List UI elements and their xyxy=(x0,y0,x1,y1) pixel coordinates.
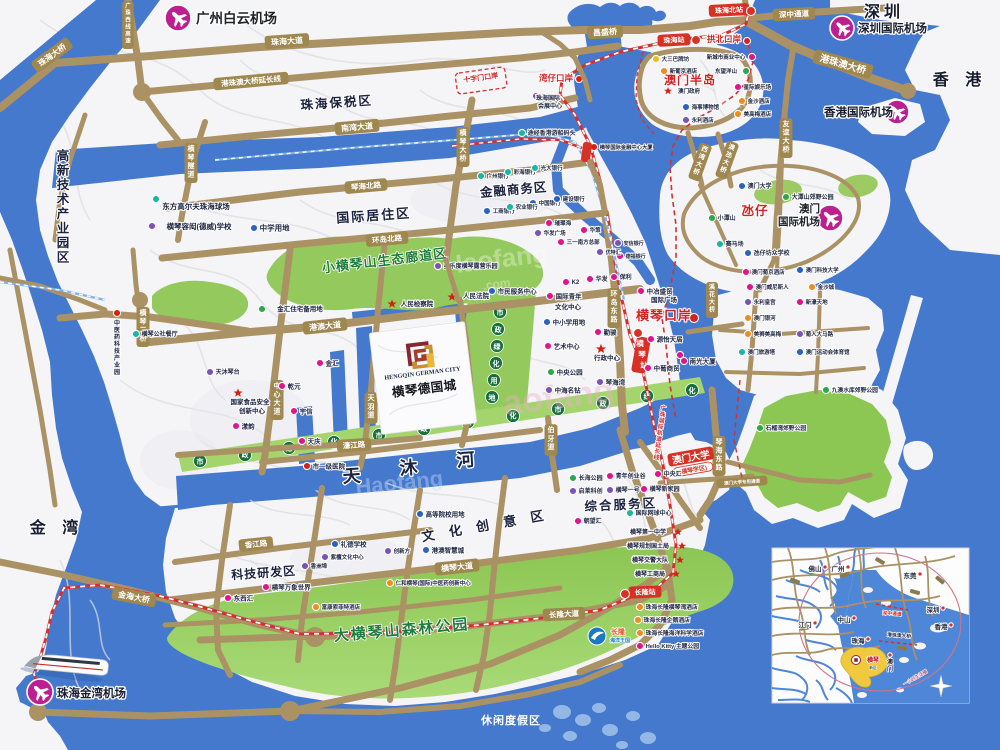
svg-text:永利皇宫: 永利皇宫 xyxy=(753,298,777,306)
svg-text:产: 产 xyxy=(57,206,70,221)
svg-text:珠海长隆企鹅酒店: 珠海长隆企鹅酒店 xyxy=(644,616,691,624)
svg-text:珠海长隆海洋科学酒店: 珠海长隆海洋科学酒店 xyxy=(646,629,704,637)
svg-text:途经香港游船码头: 途经香港游船码头 xyxy=(528,129,576,137)
svg-text:南光大厦: 南光大厦 xyxy=(690,356,717,365)
svg-text:金沙城: 金沙城 xyxy=(817,283,835,291)
svg-text:市: 市 xyxy=(197,457,204,466)
svg-text:大: 大 xyxy=(709,298,715,306)
svg-text:深中通道: 深中通道 xyxy=(779,8,810,20)
svg-text:美狮美高梅: 美狮美高梅 xyxy=(754,330,782,338)
svg-text:休闲度假区: 休闲度假区 xyxy=(480,713,541,727)
svg-text:礼德学校: 礼德学校 xyxy=(341,539,368,548)
svg-text:文化中心: 文化中心 xyxy=(554,302,582,311)
svg-text:横: 横 xyxy=(636,338,644,348)
svg-text:隧: 隧 xyxy=(188,161,196,170)
svg-text:术: 术 xyxy=(56,192,70,207)
svg-text:西: 西 xyxy=(125,16,131,24)
svg-text:沐: 沐 xyxy=(399,456,419,478)
svg-text:永利酒店: 永利酒店 xyxy=(691,116,715,124)
svg-text:东方高尔夫珠海球场: 东方高尔夫珠海球场 xyxy=(162,201,230,211)
svg-text:科: 科 xyxy=(114,340,120,348)
svg-text:大: 大 xyxy=(274,398,281,407)
svg-text:国家食品安全: 国家食品安全 xyxy=(231,397,271,406)
svg-text:长海公园: 长海公园 xyxy=(579,474,603,482)
svg-text:葡人大马路: 葡人大马路 xyxy=(805,330,834,338)
svg-text:紫檀文化中心: 紫檀文化中心 xyxy=(331,553,365,561)
svg-text:横: 横 xyxy=(140,308,147,317)
svg-text:金 湾: 金 湾 xyxy=(29,518,84,537)
svg-text:天沐琴台: 天沐琴台 xyxy=(216,368,240,376)
svg-text:澳门威尼斯人: 澳门威尼斯人 xyxy=(756,283,790,291)
svg-text:珠海国际: 珠海国际 xyxy=(536,94,560,102)
svg-text:地: 地 xyxy=(489,393,496,402)
svg-text:用: 用 xyxy=(491,377,498,385)
svg-text:道: 道 xyxy=(188,170,195,179)
svg-text:珠海金湾机场: 珠海金湾机场 xyxy=(57,686,126,700)
svg-text:新城市商业中心: 新城市商业中心 xyxy=(707,53,746,61)
svg-text:长隆: 长隆 xyxy=(611,627,626,636)
svg-text:长隆大道: 长隆大道 xyxy=(549,608,580,620)
svg-text:东: 东 xyxy=(716,454,723,463)
svg-text:高等院校用地: 高等院校用地 xyxy=(426,509,466,518)
svg-text:澳门: 澳门 xyxy=(799,202,820,215)
svg-text:金沙酒店: 金沙酒店 xyxy=(747,97,771,105)
svg-text:琴海湾: 琴海湾 xyxy=(605,377,626,386)
svg-text:谊: 谊 xyxy=(783,128,790,137)
svg-text:美高梅酒店: 美高梅酒店 xyxy=(744,110,772,118)
svg-text:大: 大 xyxy=(783,136,790,145)
svg-text:澳门旅游塔: 澳门旅游塔 xyxy=(748,348,776,356)
svg-text:朝望汇: 朝望汇 xyxy=(584,517,602,525)
svg-text:岛: 岛 xyxy=(611,298,618,307)
svg-text:路: 路 xyxy=(611,315,619,324)
svg-text:保利: 保利 xyxy=(619,273,632,281)
svg-text:会展中心: 会展中心 xyxy=(538,102,562,110)
svg-text:横琴规划国土局: 横琴规划国土局 xyxy=(627,542,669,550)
svg-text:国际广场: 国际广场 xyxy=(651,295,678,304)
svg-text:园: 园 xyxy=(114,368,120,376)
svg-text:天: 天 xyxy=(368,394,376,402)
svg-text:佛山: 佛山 xyxy=(808,564,822,573)
svg-text:乾元: 乾元 xyxy=(288,381,302,390)
svg-text:东: 东 xyxy=(611,306,618,315)
svg-text:天庆: 天庆 xyxy=(308,436,322,445)
svg-text:市民服务中心: 市民服务中心 xyxy=(498,286,537,295)
svg-text:创新中心: 创新中心 xyxy=(238,406,266,415)
svg-text:高: 高 xyxy=(57,148,70,163)
svg-text:星际娱乐场: 星际娱乐场 xyxy=(744,83,772,91)
svg-text:广州: 广州 xyxy=(832,564,845,573)
svg-text:产: 产 xyxy=(114,354,120,362)
svg-text:安信银行: 安信银行 xyxy=(624,240,644,247)
svg-text:中央汇: 中央汇 xyxy=(664,470,682,478)
svg-text:化: 化 xyxy=(493,359,500,368)
svg-text:桥: 桥 xyxy=(783,145,791,154)
svg-text:深圳: 深圳 xyxy=(864,2,904,21)
svg-text:东望洋山: 东望洋山 xyxy=(715,67,738,75)
svg-text:广: 广 xyxy=(125,2,131,10)
svg-text:琴: 琴 xyxy=(459,137,468,146)
svg-text:横: 横 xyxy=(460,128,467,137)
svg-text:环: 环 xyxy=(611,290,618,298)
svg-text:璀璨海: 璀璨海 xyxy=(555,219,572,227)
svg-text:德福银行: 德福银行 xyxy=(625,253,646,260)
svg-text:速: 速 xyxy=(125,37,131,45)
svg-text:江门: 江门 xyxy=(799,620,813,629)
svg-text:澳: 澳 xyxy=(887,658,894,666)
svg-text:香洲埠: 香洲埠 xyxy=(311,562,328,570)
svg-text:小潭山: 小潭山 xyxy=(717,214,736,222)
svg-text:政: 政 xyxy=(495,325,503,334)
svg-text:深圳: 深圳 xyxy=(927,605,941,614)
svg-text:横琴国际金融中心大厦: 横琴国际金融中心大厦 xyxy=(600,143,654,151)
svg-text:横琴第一中学: 横琴第一中学 xyxy=(630,528,666,536)
svg-text:中海名钻: 中海名钻 xyxy=(555,385,582,394)
svg-text:启莱科创: 启莱科创 xyxy=(579,487,603,495)
svg-text:新区: 新区 xyxy=(869,665,877,670)
svg-text:伯: 伯 xyxy=(547,425,555,434)
svg-text:拱北口岸: 拱北口岸 xyxy=(707,34,742,44)
svg-text:中小学用地: 中小学用地 xyxy=(553,317,586,326)
svg-text:青年创业谷: 青年创业谷 xyxy=(616,472,647,480)
svg-text:门: 门 xyxy=(887,665,893,673)
svg-text:琴: 琴 xyxy=(715,437,724,446)
svg-text:业: 业 xyxy=(57,221,70,236)
svg-text:华发: 华发 xyxy=(596,275,608,283)
svg-text:新: 新 xyxy=(57,163,70,178)
svg-text:羽: 羽 xyxy=(368,403,375,411)
svg-text:道: 道 xyxy=(368,410,375,419)
svg-text:中: 中 xyxy=(114,319,120,327)
svg-text:新葡京酒店: 新葡京酒店 xyxy=(670,67,698,75)
svg-text:大: 大 xyxy=(460,145,467,154)
svg-text:珠: 珠 xyxy=(125,9,131,17)
svg-text:建设银行: 建设银行 xyxy=(563,195,586,203)
svg-text:绿: 绿 xyxy=(494,342,502,351)
svg-text:横琴容闳(德威)学校: 横琴容闳(德威)学校 xyxy=(167,221,232,231)
svg-text:国际青年: 国际青年 xyxy=(556,291,583,300)
svg-text:三一南方总部: 三一南方总部 xyxy=(567,238,601,246)
svg-text:人民法院: 人民法院 xyxy=(463,291,490,300)
svg-text:香 港: 香 港 xyxy=(932,70,987,89)
svg-text:道: 道 xyxy=(548,442,555,451)
svg-text:中央公园: 中央公园 xyxy=(557,367,584,376)
svg-text:横琴一号: 横琴一号 xyxy=(616,486,640,494)
svg-text:中葡商贸: 中葡商贸 xyxy=(654,363,681,372)
svg-text:澳门科技大学: 澳门科技大学 xyxy=(806,266,840,274)
svg-text:业: 业 xyxy=(114,361,120,369)
svg-text:Hello Kitty 主题公园: Hello Kitty 主题公园 xyxy=(646,642,700,650)
svg-text:溪: 溪 xyxy=(709,283,716,291)
svg-text:化: 化 xyxy=(689,386,696,395)
svg-text:漾韵: 漾韵 xyxy=(242,421,256,430)
svg-text:富康索菲特酒店: 富康索菲特酒店 xyxy=(322,603,361,611)
svg-text:桥: 桥 xyxy=(460,154,468,163)
svg-text:区: 区 xyxy=(57,251,70,265)
svg-text:氹仔坊众学校: 氹仔坊众学校 xyxy=(754,249,791,257)
svg-text:技: 技 xyxy=(114,347,121,355)
svg-text:昌盛桥: 昌盛桥 xyxy=(593,26,618,37)
svg-text:濠江路: 濠江路 xyxy=(342,439,366,451)
svg-text:珠海: 珠海 xyxy=(852,636,866,645)
svg-text:澳门银河: 澳门银河 xyxy=(754,314,777,322)
svg-text:牙: 牙 xyxy=(548,435,555,443)
svg-text:优特汇: 优特汇 xyxy=(606,249,621,256)
svg-text:赛马场: 赛马场 xyxy=(725,240,744,248)
svg-text:深圳国际机场: 深圳国际机场 xyxy=(858,21,927,35)
svg-text:路: 路 xyxy=(716,463,724,472)
svg-text:琴: 琴 xyxy=(637,350,646,359)
svg-text:琴: 琴 xyxy=(187,153,196,162)
svg-text:K2: K2 xyxy=(572,280,580,286)
svg-text:花: 花 xyxy=(709,291,715,299)
svg-text:人民检察院: 人民检察院 xyxy=(401,299,434,308)
svg-text:华发广场: 华发广场 xyxy=(544,229,567,237)
svg-text:技: 技 xyxy=(57,177,70,192)
svg-text:横琴工商局: 横琴工商局 xyxy=(635,570,665,578)
svg-text:创新方: 创新方 xyxy=(393,547,411,555)
svg-text:艺术中心: 艺术中心 xyxy=(554,341,581,350)
svg-text:海事博物馆: 海事博物馆 xyxy=(692,103,720,111)
svg-text:横琴万象世界: 横琴万象世界 xyxy=(272,582,312,591)
svg-text:石榴湾郊野公园: 石榴湾郊野公园 xyxy=(765,424,807,432)
svg-text:园: 园 xyxy=(57,236,70,250)
svg-text:横琴口岸: 横琴口岸 xyxy=(636,308,692,323)
svg-text:九澳水库郊野公园: 九澳水库郊野公园 xyxy=(831,386,879,394)
svg-text:市一级医院: 市一级医院 xyxy=(313,461,346,470)
svg-text:药: 药 xyxy=(114,333,120,341)
svg-text:澳门政府: 澳门政府 xyxy=(678,87,701,95)
svg-text:宇信: 宇信 xyxy=(300,406,314,415)
svg-text:金汇: 金汇 xyxy=(325,358,340,367)
svg-text:广州白云机场: 广州白云机场 xyxy=(196,10,277,26)
svg-text:海: 海 xyxy=(716,446,723,455)
svg-text:东莞: 东莞 xyxy=(904,571,918,580)
svg-text:湾仔口岸: 湾仔口岸 xyxy=(539,73,574,83)
svg-text:线: 线 xyxy=(125,23,131,31)
svg-text:道: 道 xyxy=(274,407,281,416)
svg-text:河: 河 xyxy=(456,449,475,470)
svg-text:海洋王国: 海洋王国 xyxy=(610,637,630,644)
svg-text:大潭山郊野公园: 大潭山郊野公园 xyxy=(792,193,834,201)
svg-text:国际网球中心: 国际网球中心 xyxy=(636,509,672,517)
svg-text:星乐度横琴露营乐园: 星乐度横琴露营乐园 xyxy=(444,262,498,270)
svg-text:中冶盛贸: 中冶盛贸 xyxy=(647,286,674,295)
svg-text:澳门运动会体育馆: 澳门运动会体育馆 xyxy=(806,348,851,356)
svg-text:农业银行: 农业银行 xyxy=(515,203,539,211)
svg-text:勤骏: 勤骏 xyxy=(604,327,618,336)
svg-text:光大银行: 光大银行 xyxy=(540,164,564,172)
svg-text:华策: 华策 xyxy=(590,226,602,234)
svg-text:高: 高 xyxy=(125,30,131,38)
svg-text:中学用地: 中学用地 xyxy=(260,223,290,233)
svg-text:仁和横琴(国际)中医药创新中心: 仁和横琴(国际)中医药创新中心 xyxy=(396,579,472,587)
svg-text:东西汇: 东西汇 xyxy=(234,593,254,602)
svg-text:澳门大学: 澳门大学 xyxy=(748,182,772,190)
svg-text:医: 医 xyxy=(114,326,120,334)
svg-text:源怡天居: 源怡天居 xyxy=(657,334,684,343)
svg-text:金汇住宅备用地: 金汇住宅备用地 xyxy=(276,304,323,313)
svg-text:友: 友 xyxy=(782,119,790,128)
svg-text:琴: 琴 xyxy=(139,317,148,326)
svg-text:香港国际机场: 香港国际机场 xyxy=(823,105,893,119)
svg-text:横琴公社餐厅: 横琴公社餐厅 xyxy=(142,330,178,338)
svg-text:中山: 中山 xyxy=(838,615,851,624)
svg-text:横琴新家园: 横琴新家园 xyxy=(650,485,680,493)
svg-text:横琴交警大队: 横琴交警大队 xyxy=(632,556,669,564)
svg-text:新濠天地: 新濠天地 xyxy=(806,298,829,306)
svg-text:大三巴牌坊: 大三巴牌坊 xyxy=(662,55,690,63)
svg-text:香港: 香港 xyxy=(935,622,949,631)
svg-text:国际机场: 国际机场 xyxy=(778,215,820,228)
svg-text:港澳智慧城: 港澳智慧城 xyxy=(432,545,465,554)
svg-text:心: 心 xyxy=(274,390,281,399)
svg-text:澳门葡京酒店: 澳门葡京酒店 xyxy=(752,268,786,276)
svg-text:氹仔: 氹仔 xyxy=(741,203,768,218)
svg-text:珠海长隆横琴湾酒店: 珠海长隆横琴湾酒店 xyxy=(646,603,698,611)
svg-text:横琴: 横琴 xyxy=(867,656,880,664)
svg-text:横: 横 xyxy=(188,144,195,153)
svg-text:桥: 桥 xyxy=(709,306,716,314)
svg-text:行政中心: 行政中心 xyxy=(593,353,621,362)
